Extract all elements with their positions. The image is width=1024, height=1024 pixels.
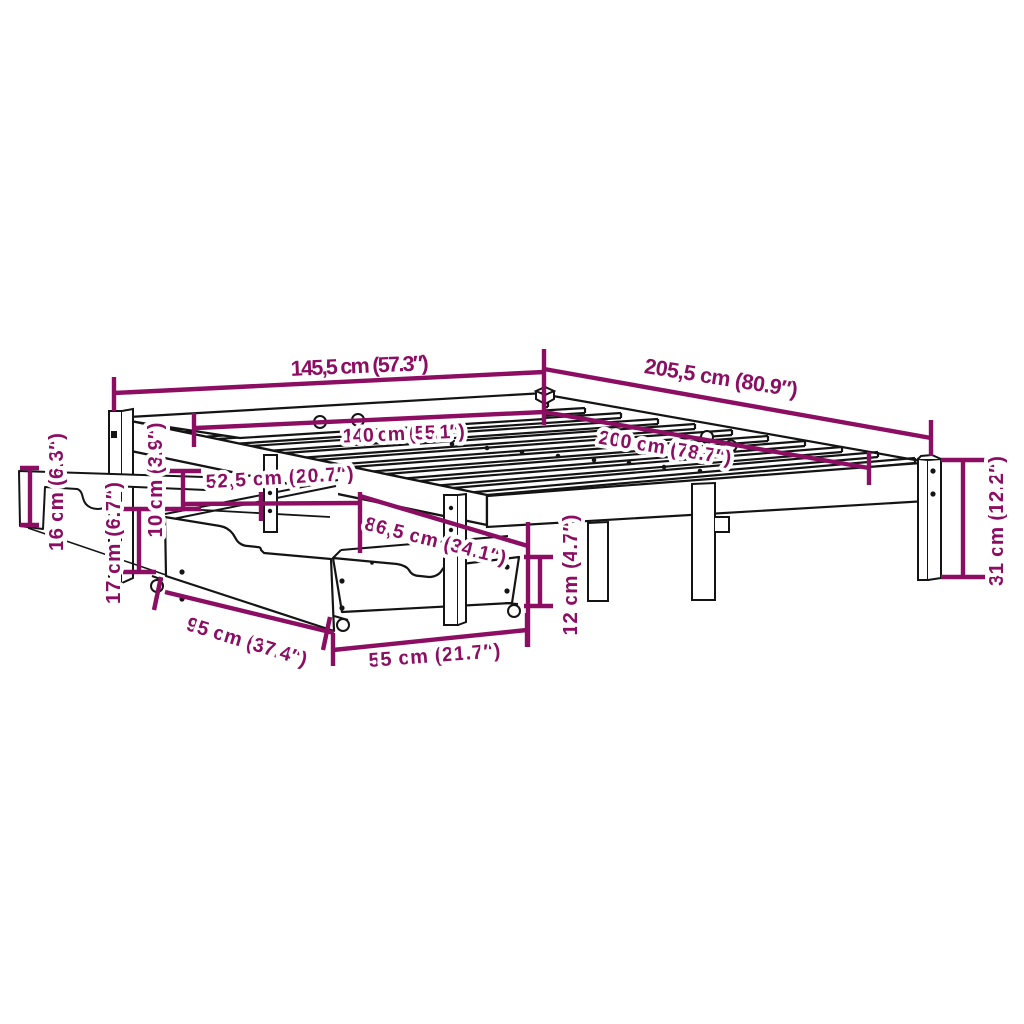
svg-text:10 cm (3.9″): 10 cm (3.9″) — [144, 423, 167, 538]
svg-text:31 cm (12.2″): 31 cm (12.2″) — [985, 456, 1008, 586]
svg-text:16 cm (6.3″): 16 cm (6.3″) — [45, 433, 68, 551]
svg-text:12 cm (4.7″): 12 cm (4.7″) — [559, 515, 582, 636]
svg-text:17 cm (6.7″): 17 cm (6.7″) — [102, 482, 125, 604]
